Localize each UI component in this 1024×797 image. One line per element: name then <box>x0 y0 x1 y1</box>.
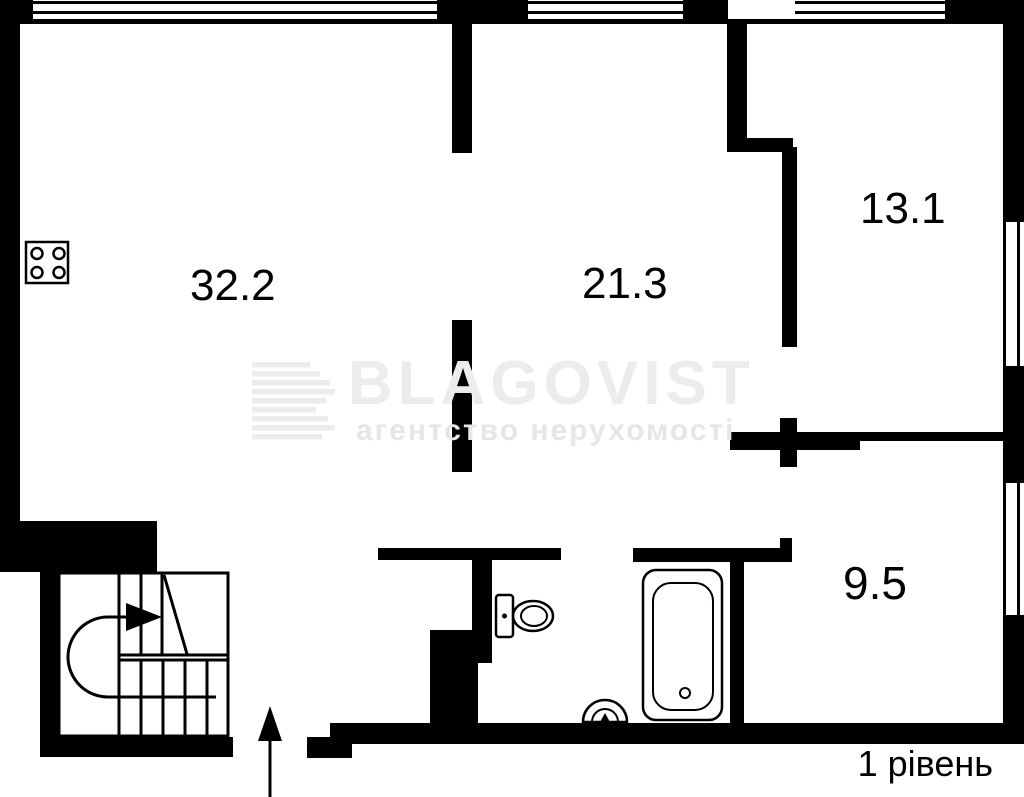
floor-plan: BLAGOVIST агентство нерухомості 32.2 21.… <box>0 0 1024 797</box>
room-area-label-21-3: 21.3 <box>582 262 668 306</box>
room-area-label-13-1: 13.1 <box>860 187 946 231</box>
level-label: 1 рівень <box>693 746 993 782</box>
room-area-label-9-5: 9.5 <box>843 560 907 606</box>
room-area-label-32-2: 32.2 <box>190 264 276 308</box>
labels-layer: 32.2 21.3 13.1 9.5 1 рівень <box>0 0 1024 797</box>
